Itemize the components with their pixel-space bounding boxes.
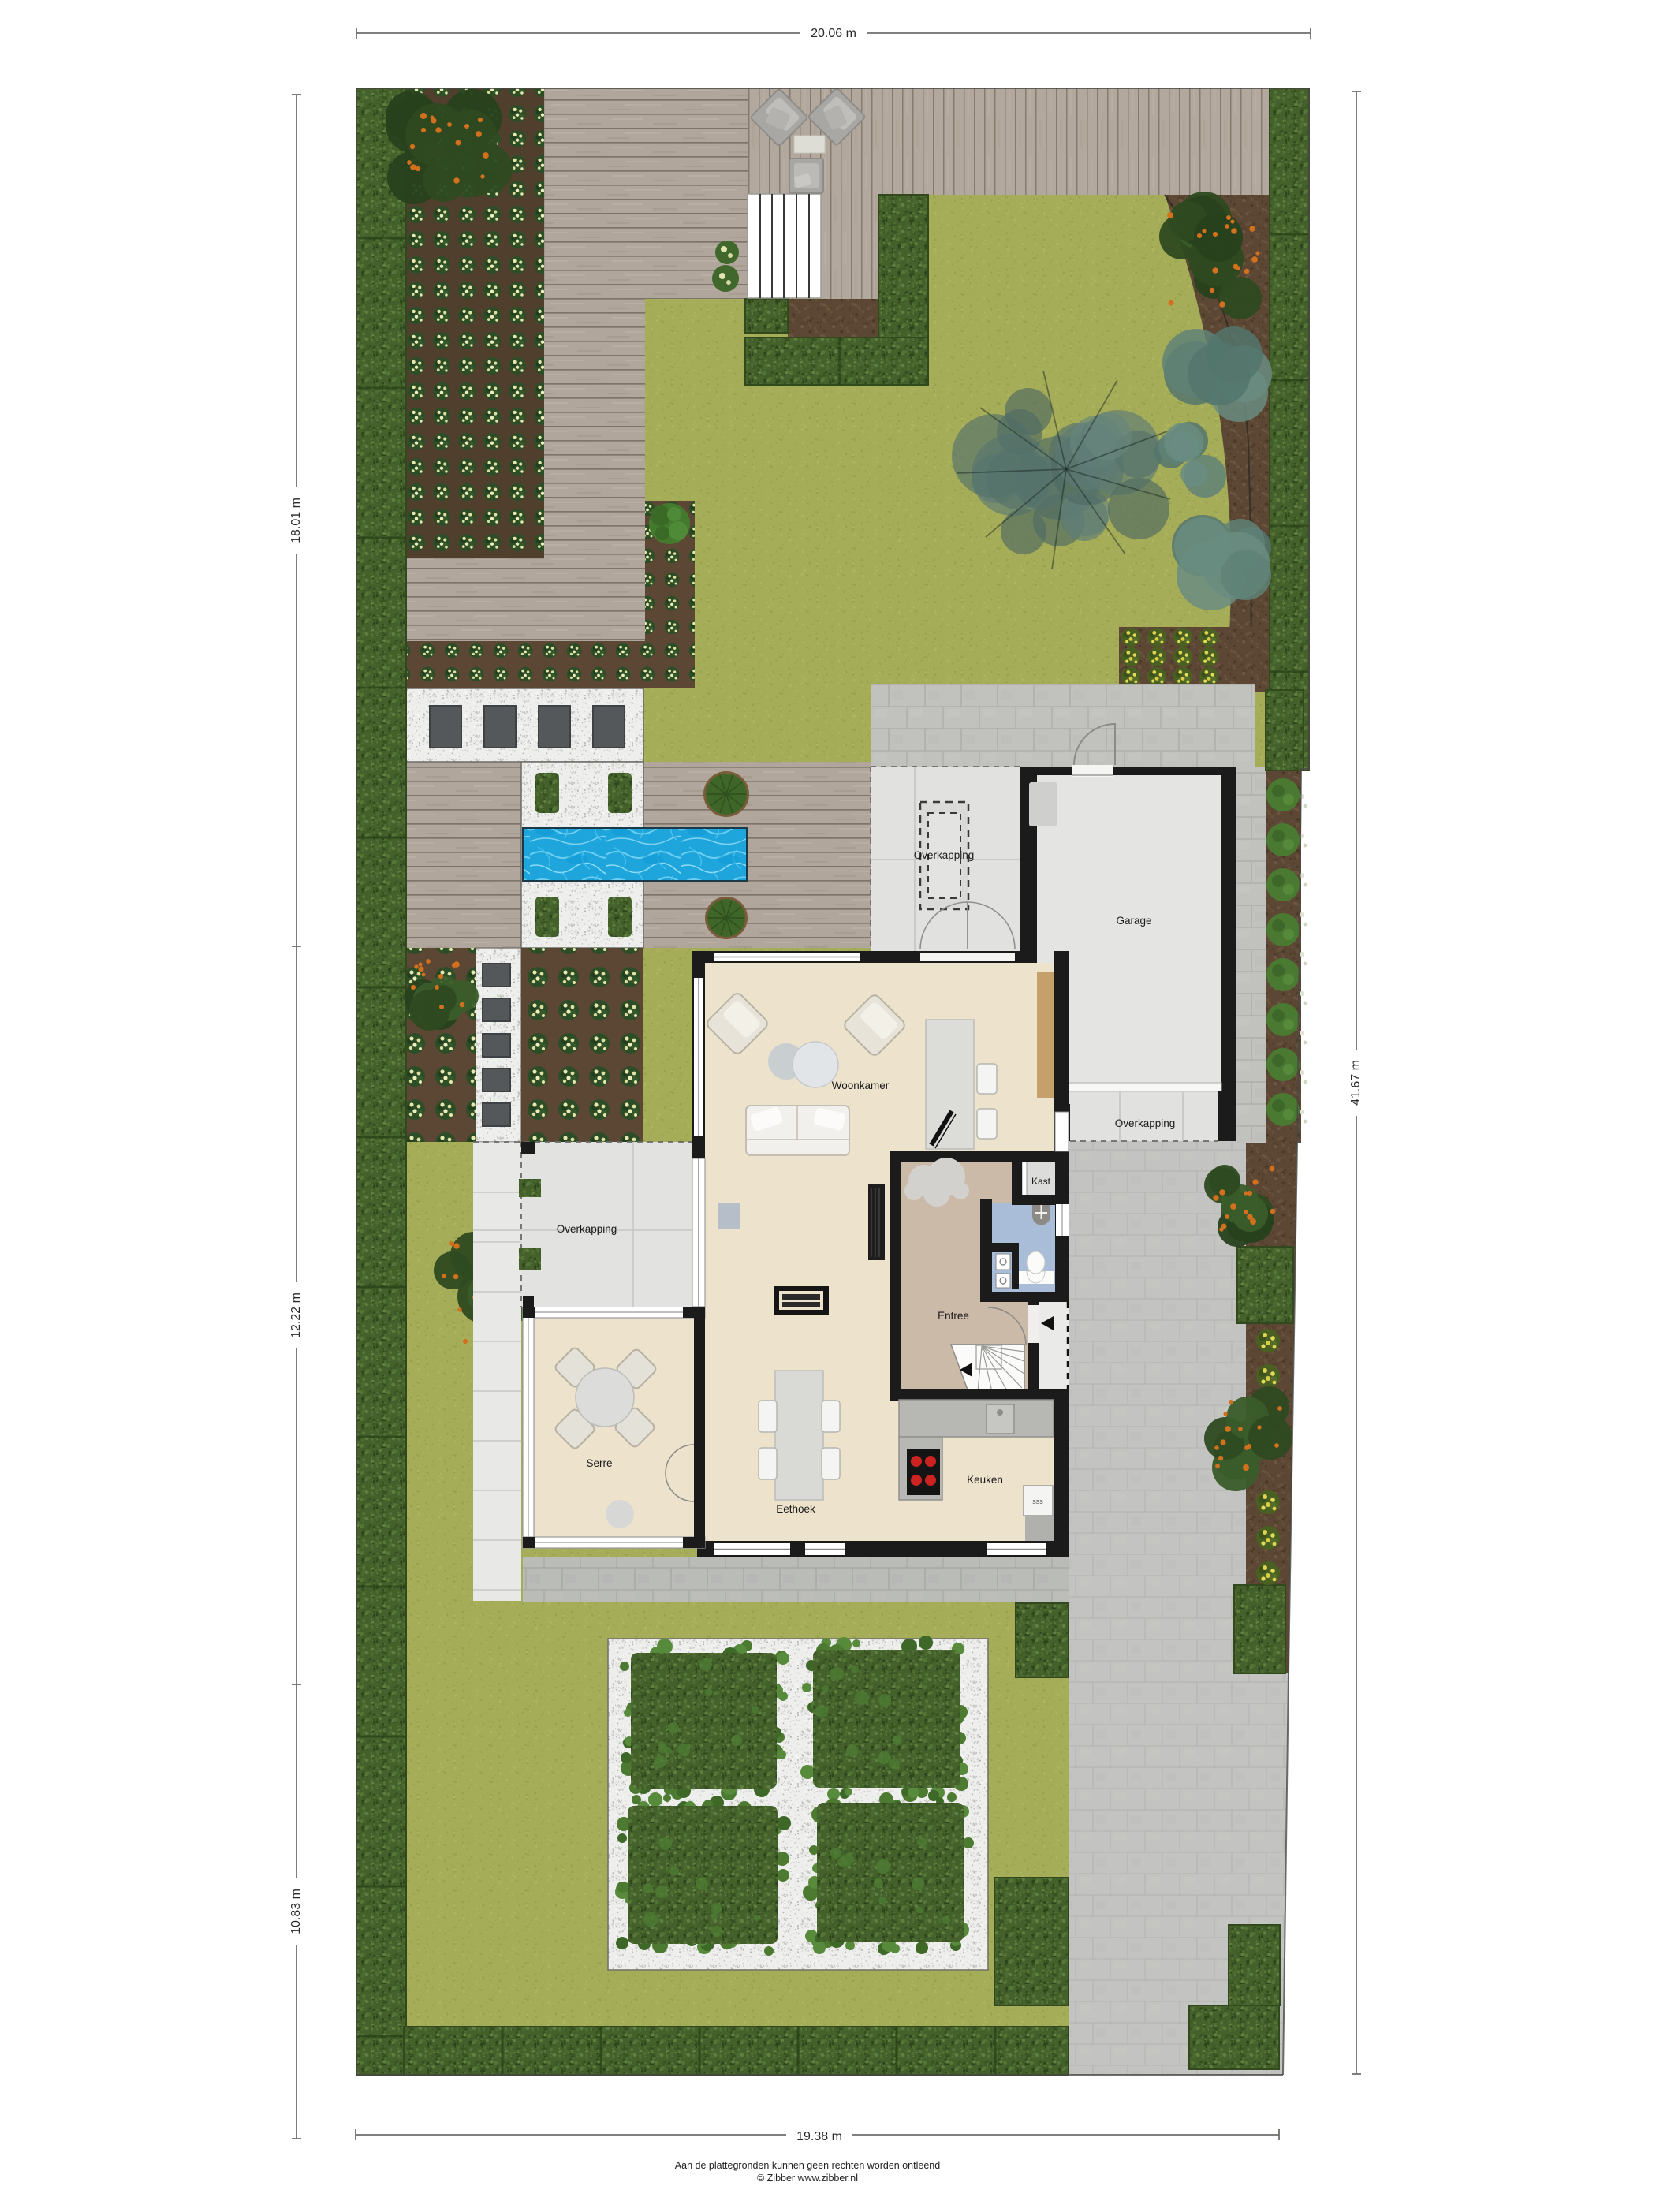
svg-text:Entree: Entree [938, 1310, 969, 1322]
svg-text:18.01 m: 18.01 m [289, 498, 303, 543]
svg-text:41.67 m: 41.67 m [1349, 1060, 1363, 1106]
svg-text:Woonkamer: Woonkamer [832, 1080, 890, 1091]
svg-text:20.06 m: 20.06 m [811, 27, 856, 40]
svg-text:Serre: Serre [586, 1457, 612, 1469]
svg-text:Keuken: Keuken [967, 1474, 1003, 1486]
svg-text:Overkapping: Overkapping [557, 1223, 617, 1235]
svg-text:Eethoek: Eethoek [776, 1503, 815, 1515]
svg-text:Aan de plattegronden kunnen ge: Aan de plattegronden kunnen geen rechten… [675, 2160, 940, 2171]
svg-text:10.83 m: 10.83 m [289, 1889, 303, 1934]
svg-text:© Zibber www.zibber.nl: © Zibber www.zibber.nl [757, 2173, 858, 2184]
svg-text:Overkapping: Overkapping [1115, 1117, 1176, 1129]
svg-text:19.38 m: 19.38 m [796, 2130, 842, 2143]
svg-text:12.22 m: 12.22 m [289, 1293, 303, 1338]
svg-text:sss: sss [1032, 1498, 1043, 1505]
svg-text:Garage: Garage [1116, 915, 1151, 927]
svg-text:Overkapping: Overkapping [914, 849, 975, 861]
svg-text:Kast: Kast [1031, 1176, 1051, 1187]
